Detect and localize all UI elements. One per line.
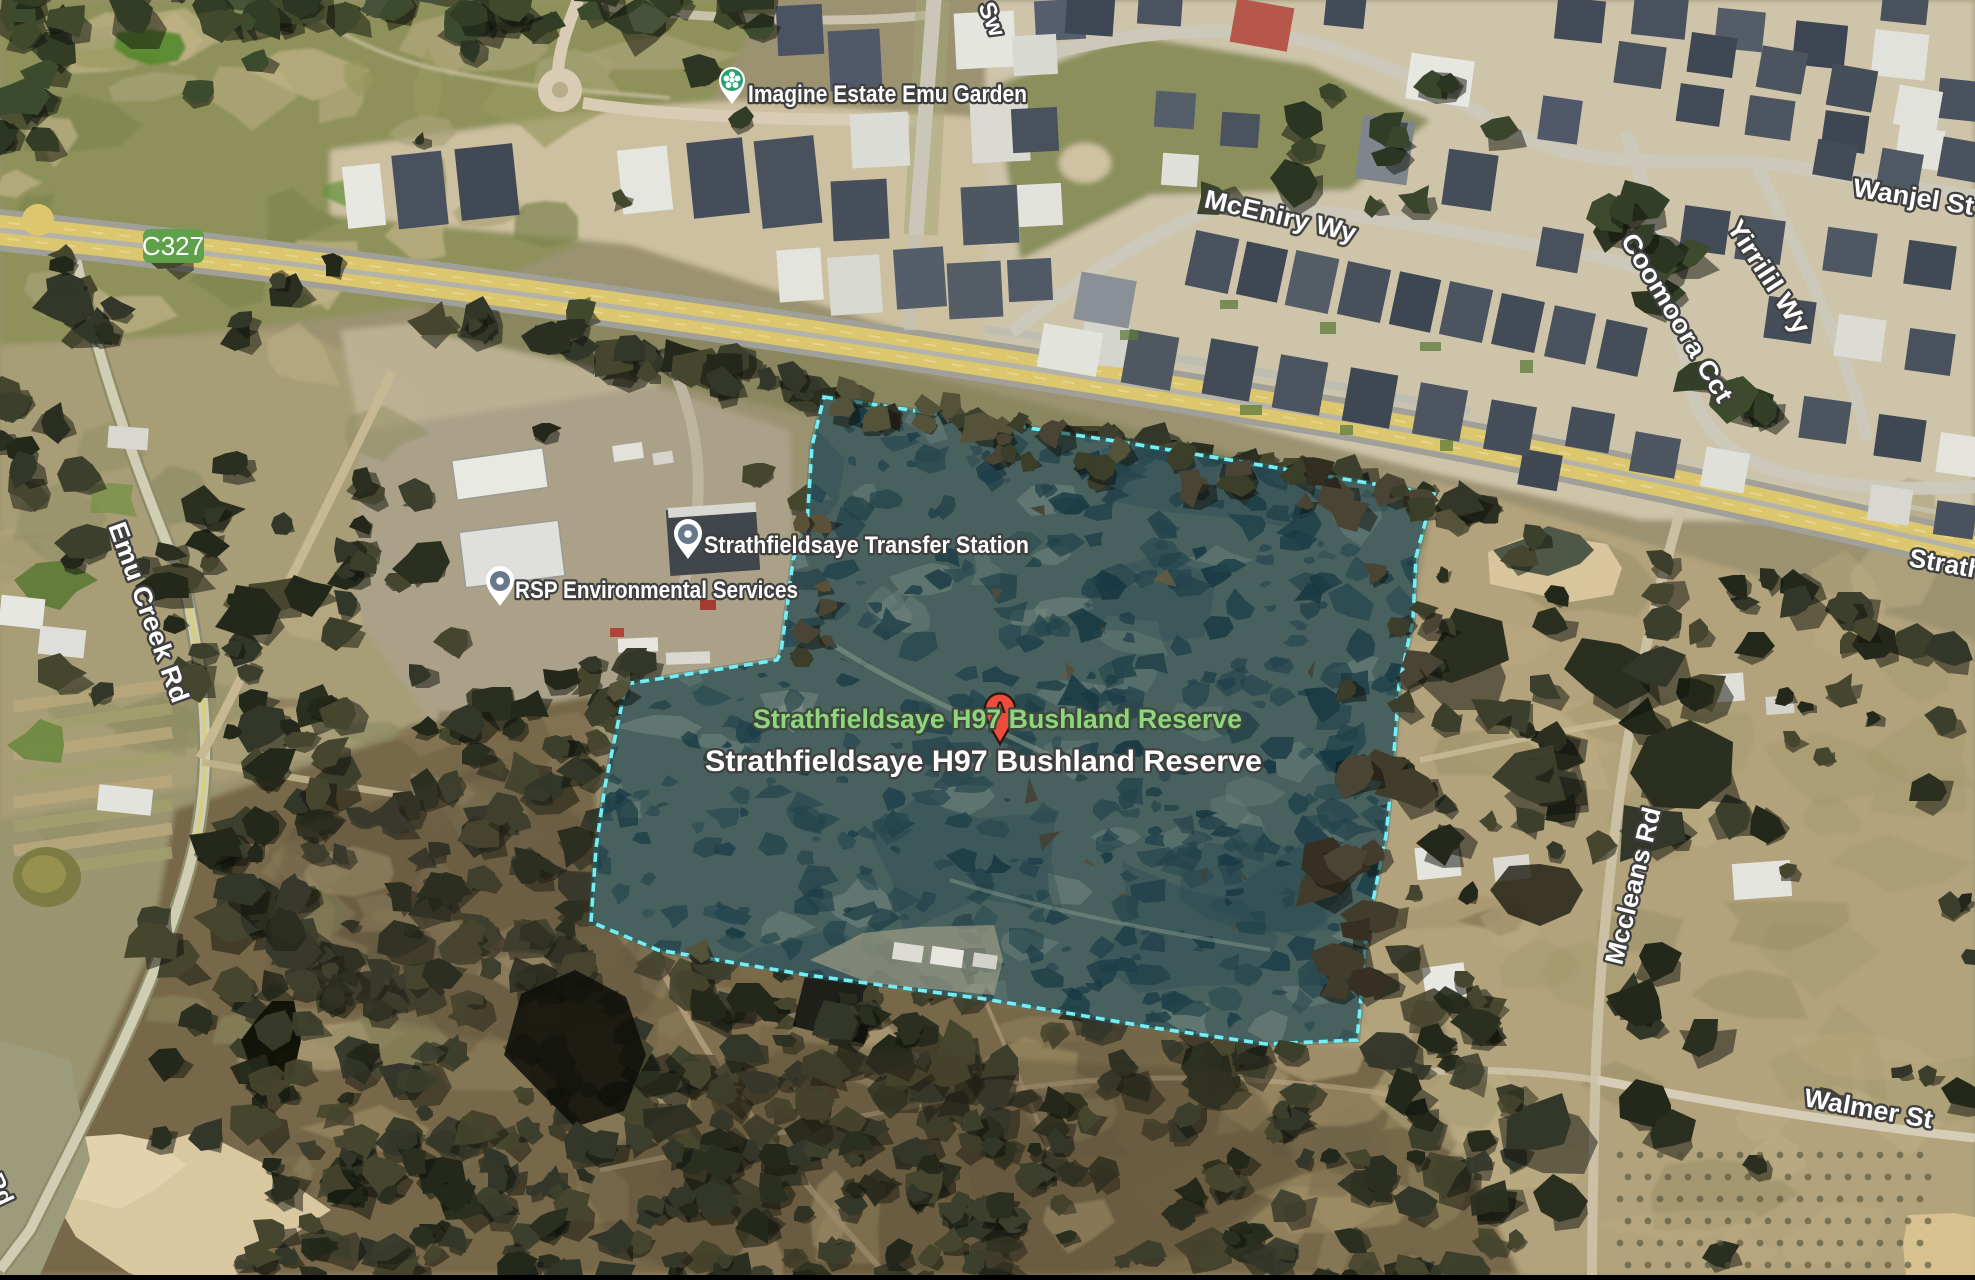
svg-text:Imagine Estate Emu Garden: Imagine Estate Emu Garden: [748, 81, 1027, 108]
svg-text:Strathfieldsaye H97 Bushland R: Strathfieldsaye H97 Bushland Reserve: [753, 704, 1242, 734]
svg-text:Strathfieldsaye H97 Bushland R: Strathfieldsaye H97 Bushland Reserve: [705, 745, 1262, 778]
svg-text:Strathfieldsaye Transfer Stati: Strathfieldsaye Transfer Station: [704, 532, 1029, 559]
svg-text:C327: C327: [142, 231, 204, 261]
svg-text:RSP Environmental Services: RSP Environmental Services: [515, 577, 798, 604]
